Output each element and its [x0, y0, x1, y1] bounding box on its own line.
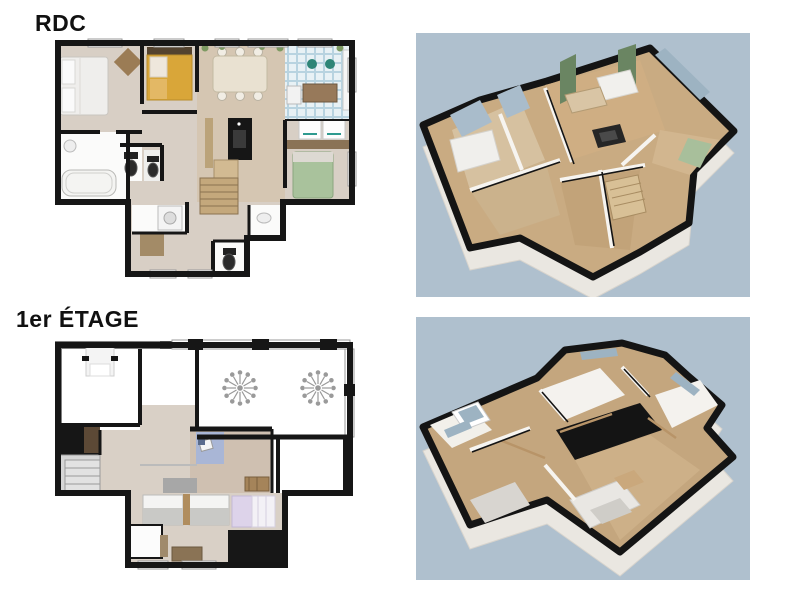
dining-table: [213, 48, 267, 101]
rdc-green-bed: [293, 152, 333, 198]
closet-black: [228, 530, 283, 562]
gray-mat: [163, 478, 197, 493]
first-floor-title: 1er ÉTAGE: [16, 306, 139, 333]
floorplan-sheet: RDC 1er ÉTAGE: [0, 0, 800, 603]
ground-floor-title: RDC: [35, 10, 86, 37]
wood-bench: [245, 477, 269, 491]
rdc-yellow-bed: [147, 47, 192, 100]
etage-bed-outline: [82, 346, 118, 376]
lavender-bed: [232, 496, 275, 527]
rdc-master-bed: [60, 57, 108, 115]
etage-3d-render: [416, 317, 750, 580]
twin-beds: [143, 494, 229, 525]
rdc-3d-render: [416, 33, 750, 297]
rdc-2d-floorplan: [50, 36, 360, 280]
headboard-wall: [283, 140, 352, 149]
toilet-2: [147, 156, 159, 177]
etage-2d-floorplan: [50, 336, 360, 572]
